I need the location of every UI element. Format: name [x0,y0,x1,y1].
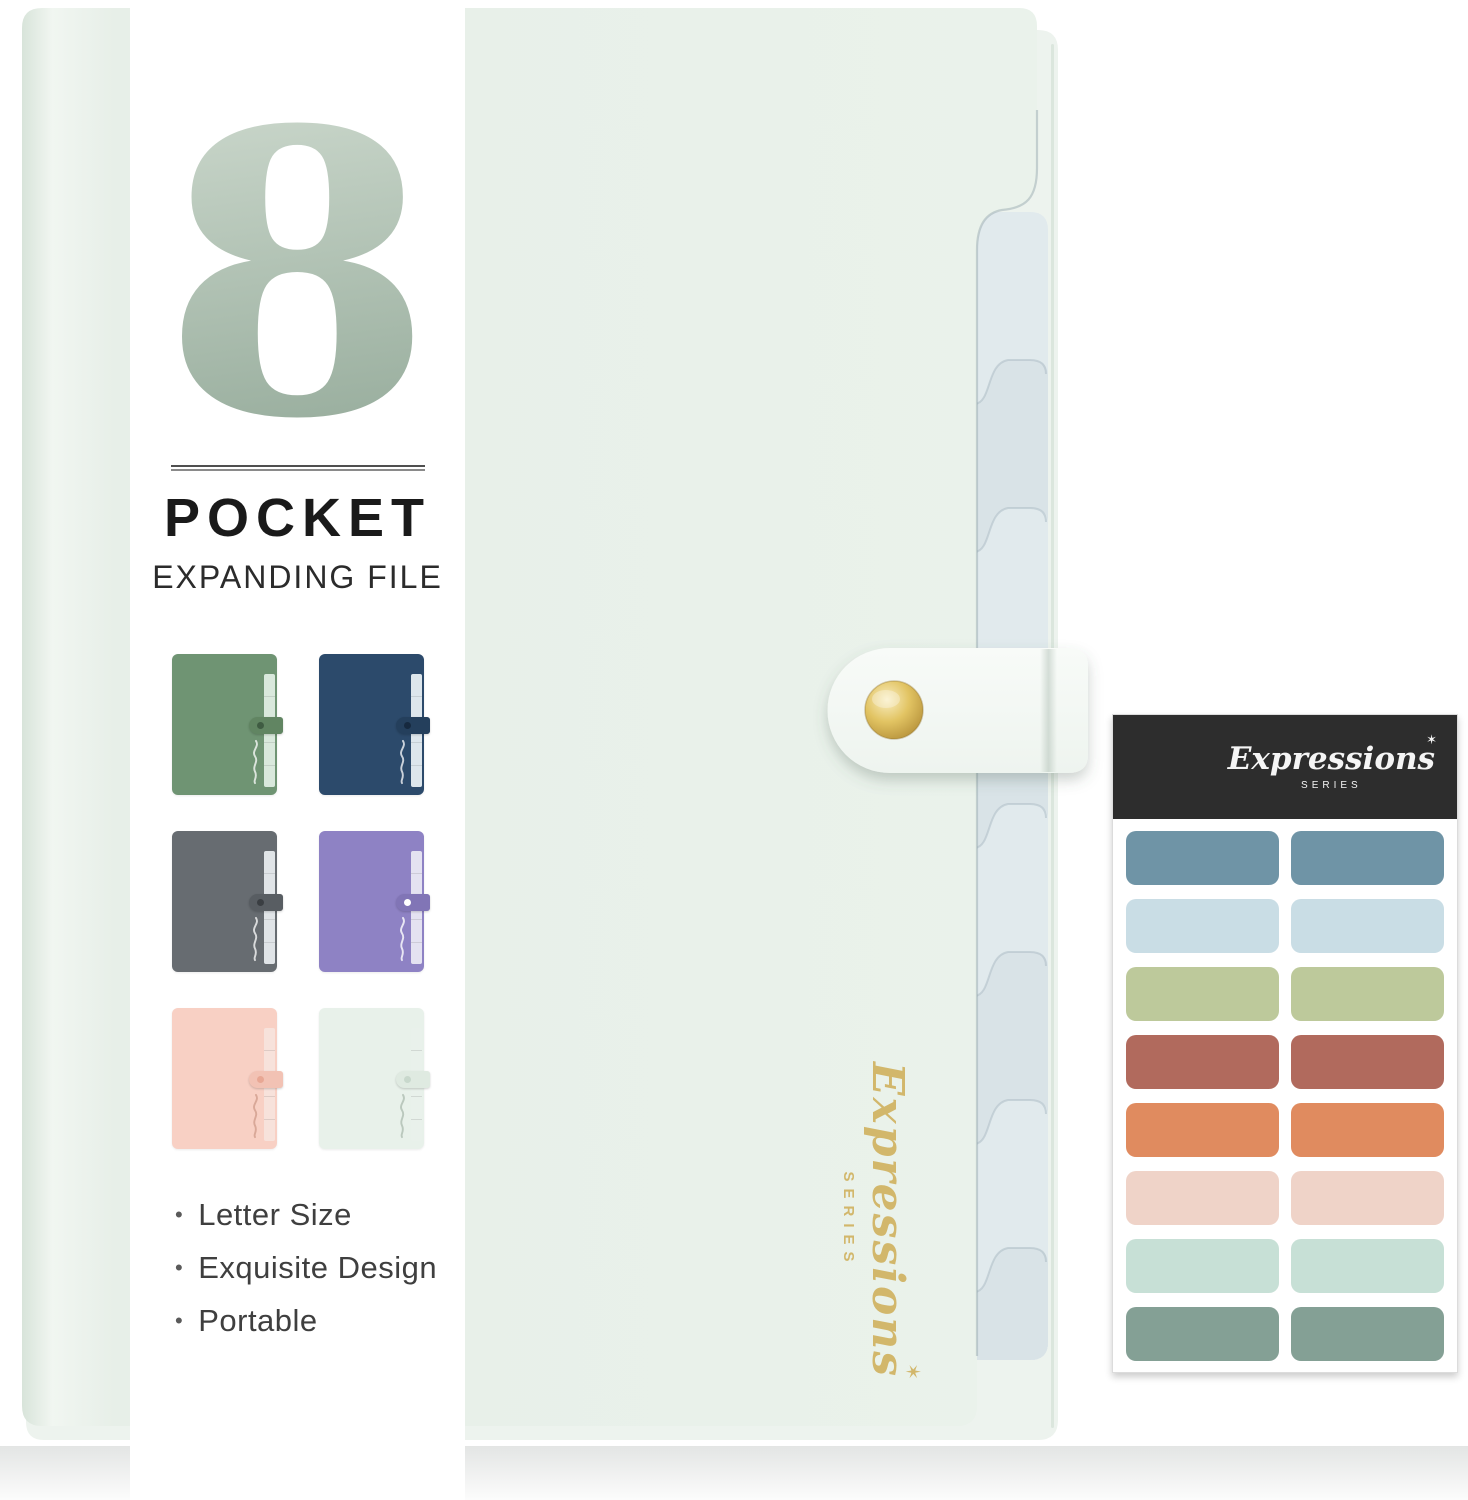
mini-folder-foil-mark [396,739,408,785]
sticker-label [1291,967,1444,1021]
sticker-label [1126,899,1279,953]
product-image: Expressions ✶ SERIES 8 POCKET EXPANDING … [0,0,1468,1500]
sticker-sheet-header: Expressions ✶ SERIES [1113,715,1457,819]
sticker-label [1291,1239,1444,1293]
sticker-label [1291,1307,1444,1361]
sticker-label [1126,831,1279,885]
mini-folder-snap-dot [257,1076,264,1083]
mini-folder-strap [249,717,283,734]
feature-text: Portable [198,1303,317,1339]
feature-list: • Letter Size • Exquisite Design • Porta… [175,1197,465,1339]
mini-folder [172,1008,277,1149]
feature-item: • Portable [175,1303,465,1339]
sheet-brand-logo: Expressions ✶ SERIES [1228,744,1435,791]
sticker-grid [1113,819,1457,1373]
star-icon: ✶ [1426,734,1437,747]
feature-item: • Letter Size [175,1197,465,1233]
snap-strap [828,648,1088,773]
bullet-dot: • [175,1257,183,1279]
sheet-brand-script: Expressions ✶ [1228,744,1435,775]
sticker-label [1126,967,1279,1021]
mini-folder-strap [396,894,430,911]
mini-folder-snap-dot [404,899,411,906]
sticker-label [1126,1103,1279,1157]
mini-folder-foil-mark [249,1093,261,1139]
feature-text: Letter Size [198,1197,352,1233]
bullet-dot: • [175,1310,183,1332]
mini-folder-snap-dot [257,722,264,729]
sheet-brand-series: SERIES [1301,780,1362,791]
mini-folder-strap [396,717,430,734]
sticker-label [1126,1035,1279,1089]
folder-tab-stack [975,212,1048,1360]
product-title: POCKET [130,487,465,549]
mini-folder-foil-mark [249,916,261,962]
sticker-label [1291,899,1444,953]
feature-text: Exquisite Design [198,1250,437,1286]
sticker-label [1291,1035,1444,1089]
mini-folder-snap-dot [404,1076,411,1083]
mini-folder [172,654,277,795]
color-swatch-grid [172,654,424,1149]
sticker-label [1126,1307,1279,1361]
sticker-label [1291,1103,1444,1157]
mini-folder-strap [249,894,283,911]
sticker-label [1126,1171,1279,1225]
mini-folder [319,654,424,795]
mini-folder [172,831,277,972]
mini-folder-foil-mark [249,739,261,785]
mini-folder-strap [249,1071,283,1088]
sticker-label [1291,831,1444,885]
sticker-label [1126,1239,1279,1293]
feature-item: • Exquisite Design [175,1250,465,1286]
mini-folder-foil-mark [396,1093,408,1139]
mini-folder [319,831,424,972]
mini-folder-strap [396,1071,430,1088]
mini-folder-snap-dot [404,722,411,729]
mini-folder-foil-mark [396,916,408,962]
mini-folder-snap-dot [257,899,264,906]
info-panel: 8 POCKET EXPANDING FILE [130,0,465,1500]
mini-folder [319,1008,424,1149]
sticker-label [1291,1171,1444,1225]
bullet-dot: • [175,1204,183,1226]
pocket-count: 8 [130,96,465,455]
product-subtitle: EXPANDING FILE [130,559,465,596]
sticker-label-sheet: Expressions ✶ SERIES [1112,714,1458,1373]
